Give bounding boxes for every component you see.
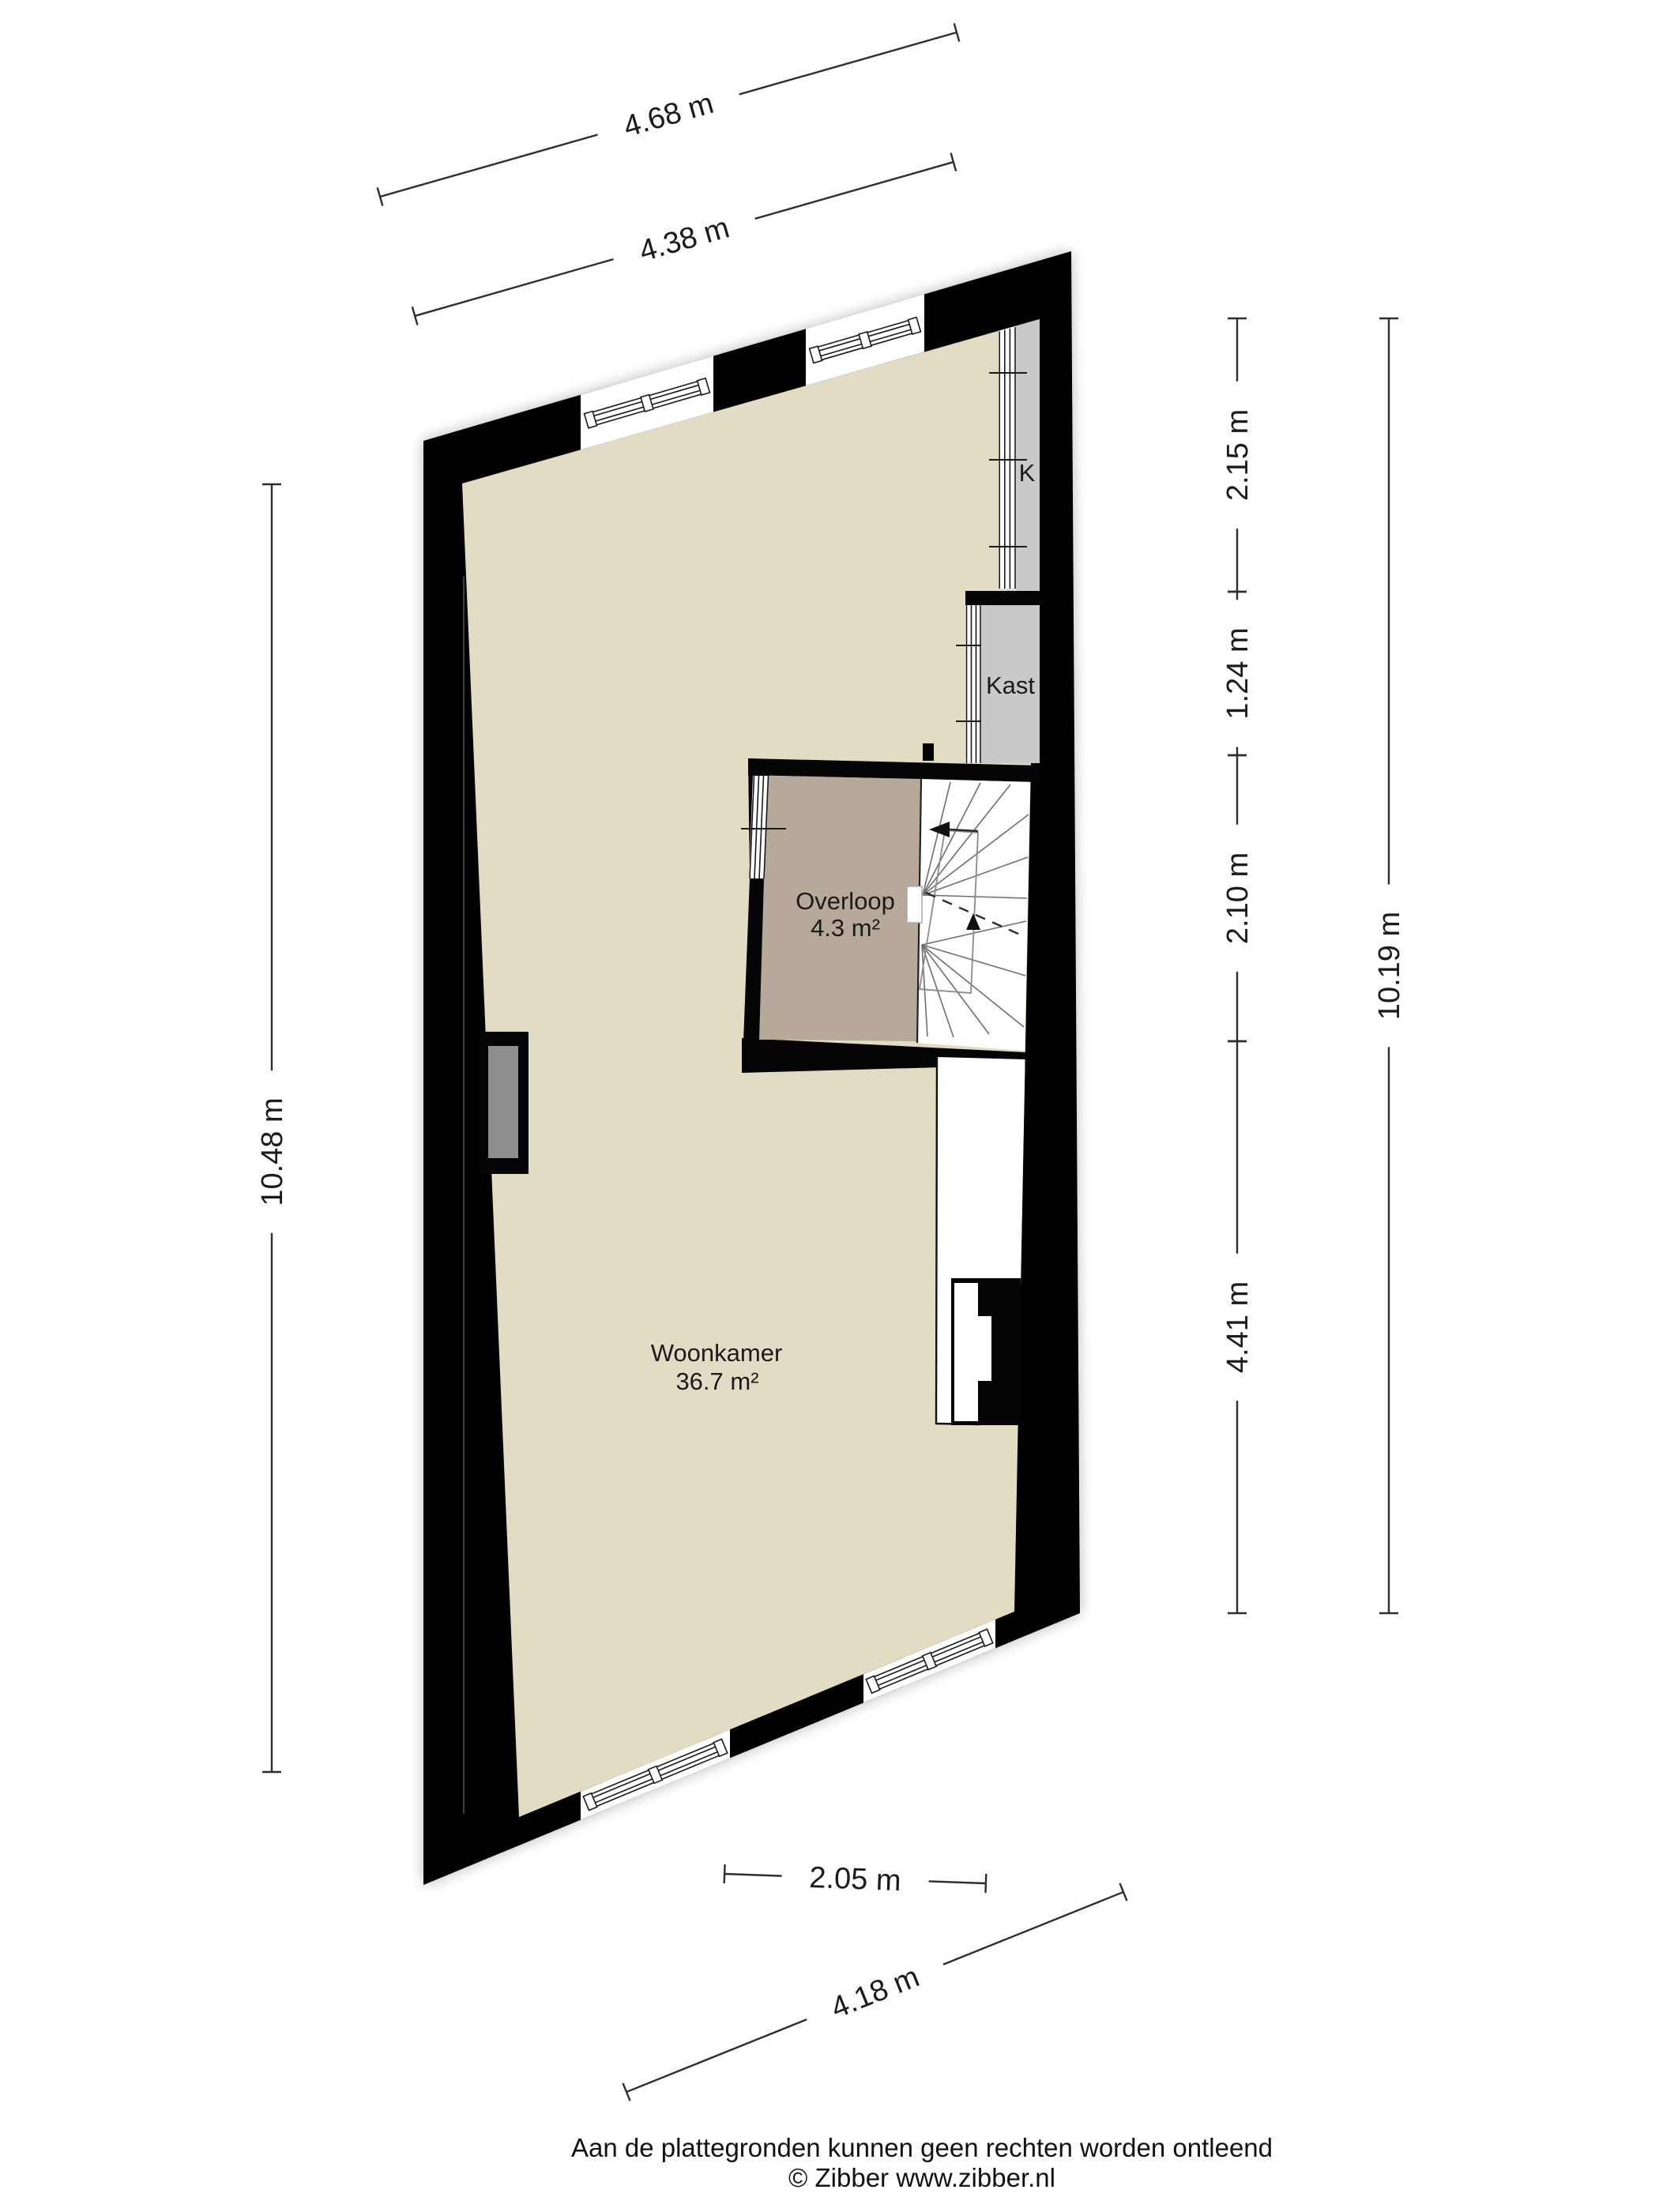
svg-text:4.3 m²: 4.3 m²	[811, 914, 880, 942]
svg-text:4.41 m: 4.41 m	[1221, 1281, 1255, 1373]
svg-text:K: K	[1019, 459, 1036, 487]
svg-text:2.15 m: 2.15 m	[1221, 409, 1255, 501]
svg-text:10.19 m: 10.19 m	[1373, 912, 1406, 1020]
svg-text:2.05 m: 2.05 m	[809, 1861, 902, 1898]
svg-text:2.10 m: 2.10 m	[1221, 852, 1255, 944]
svg-text:36.7 m²: 36.7 m²	[675, 1367, 758, 1395]
svg-text:Overloop: Overloop	[796, 887, 895, 915]
svg-text:Woonkamer: Woonkamer	[651, 1339, 783, 1367]
svg-text:1.24 m: 1.24 m	[1221, 627, 1255, 719]
svg-text:Kast: Kast	[986, 671, 1035, 699]
svg-text:Aan de plattegronden kunnen ge: Aan de plattegronden kunnen geen rechten…	[571, 2133, 1273, 2162]
svg-text:10.48 m: 10.48 m	[256, 1097, 289, 1206]
svg-text:© Zibber www.zibber.nl: © Zibber www.zibber.nl	[788, 2163, 1055, 2192]
